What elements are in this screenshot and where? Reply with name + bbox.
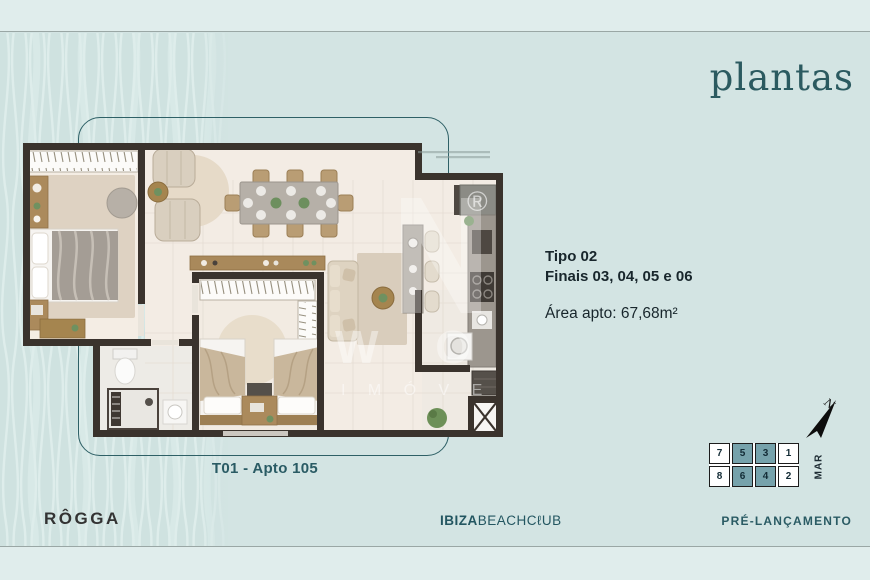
unit-type: Tipo 02 — [545, 247, 693, 267]
unit-area: Área apto: 67,68m² — [545, 305, 693, 323]
watermark-word: I M Ó V E — [341, 380, 491, 399]
master-bedroom — [27, 151, 138, 338]
window — [223, 431, 288, 436]
chair — [225, 195, 240, 211]
armchair — [155, 199, 200, 241]
plant — [427, 408, 447, 428]
north-label: N — [821, 395, 838, 412]
pillow — [278, 397, 315, 414]
site-map: 7 5 3 1 8 6 4 2 — [709, 443, 799, 487]
wardrobe-hatch — [28, 152, 137, 171]
wardrobe-hatch — [201, 281, 314, 299]
development-name-bold: IBIZA — [440, 513, 478, 528]
unit-cell: 3 — [755, 443, 776, 464]
plan-caption: T01 - Apto 105 — [155, 460, 375, 477]
page-title: plantas — [710, 56, 854, 99]
sideboard — [190, 256, 325, 270]
unit-info: Tipo 02 Finais 03, 04, 05 e 06 Área apto… — [545, 247, 693, 323]
development-name: IBIZABEACHCℓUB — [440, 513, 562, 528]
page-background: ® W O L F I M Ó V E plantas Tipo 02 Fina… — [0, 0, 870, 580]
pillow — [32, 267, 48, 298]
unit-cell: 2 — [778, 466, 799, 487]
shower-head — [145, 398, 153, 406]
unit-cell: 1 — [778, 443, 799, 464]
basin — [168, 405, 182, 419]
stool — [425, 291, 439, 312]
brand-logo: RÔGGA — [44, 509, 121, 529]
pillow — [32, 233, 48, 264]
toilet — [115, 358, 135, 384]
unit-cell: 6 — [732, 466, 753, 487]
unit-cell: 8 — [709, 466, 730, 487]
sea-label: MAR — [814, 447, 825, 487]
unit-cell: 7 — [709, 443, 730, 464]
top-band — [0, 0, 870, 32]
headboard — [200, 415, 245, 425]
chair — [338, 195, 353, 211]
unit-cell: 5 — [732, 443, 753, 464]
watermark-registered: ® — [467, 186, 488, 217]
pouf — [107, 188, 137, 218]
floor-plan: ® W O L F I M Ó V E — [23, 143, 503, 437]
armchair — [153, 149, 195, 187]
watermark-letters: W O L F — [335, 321, 503, 373]
unit-finals: Finais 03, 04, 05 e 06 — [545, 267, 693, 287]
tv — [247, 383, 272, 396]
north-arrow-icon: N — [796, 392, 844, 444]
development-name-light: BEACHCℓUB — [478, 513, 562, 528]
unit-cell: 4 — [755, 466, 776, 487]
launch-status: PRÉ-LANÇAMENTO — [721, 514, 852, 528]
bottom-band — [0, 546, 870, 580]
headboard — [274, 415, 319, 425]
pillow — [204, 397, 241, 414]
elevator — [474, 403, 496, 431]
